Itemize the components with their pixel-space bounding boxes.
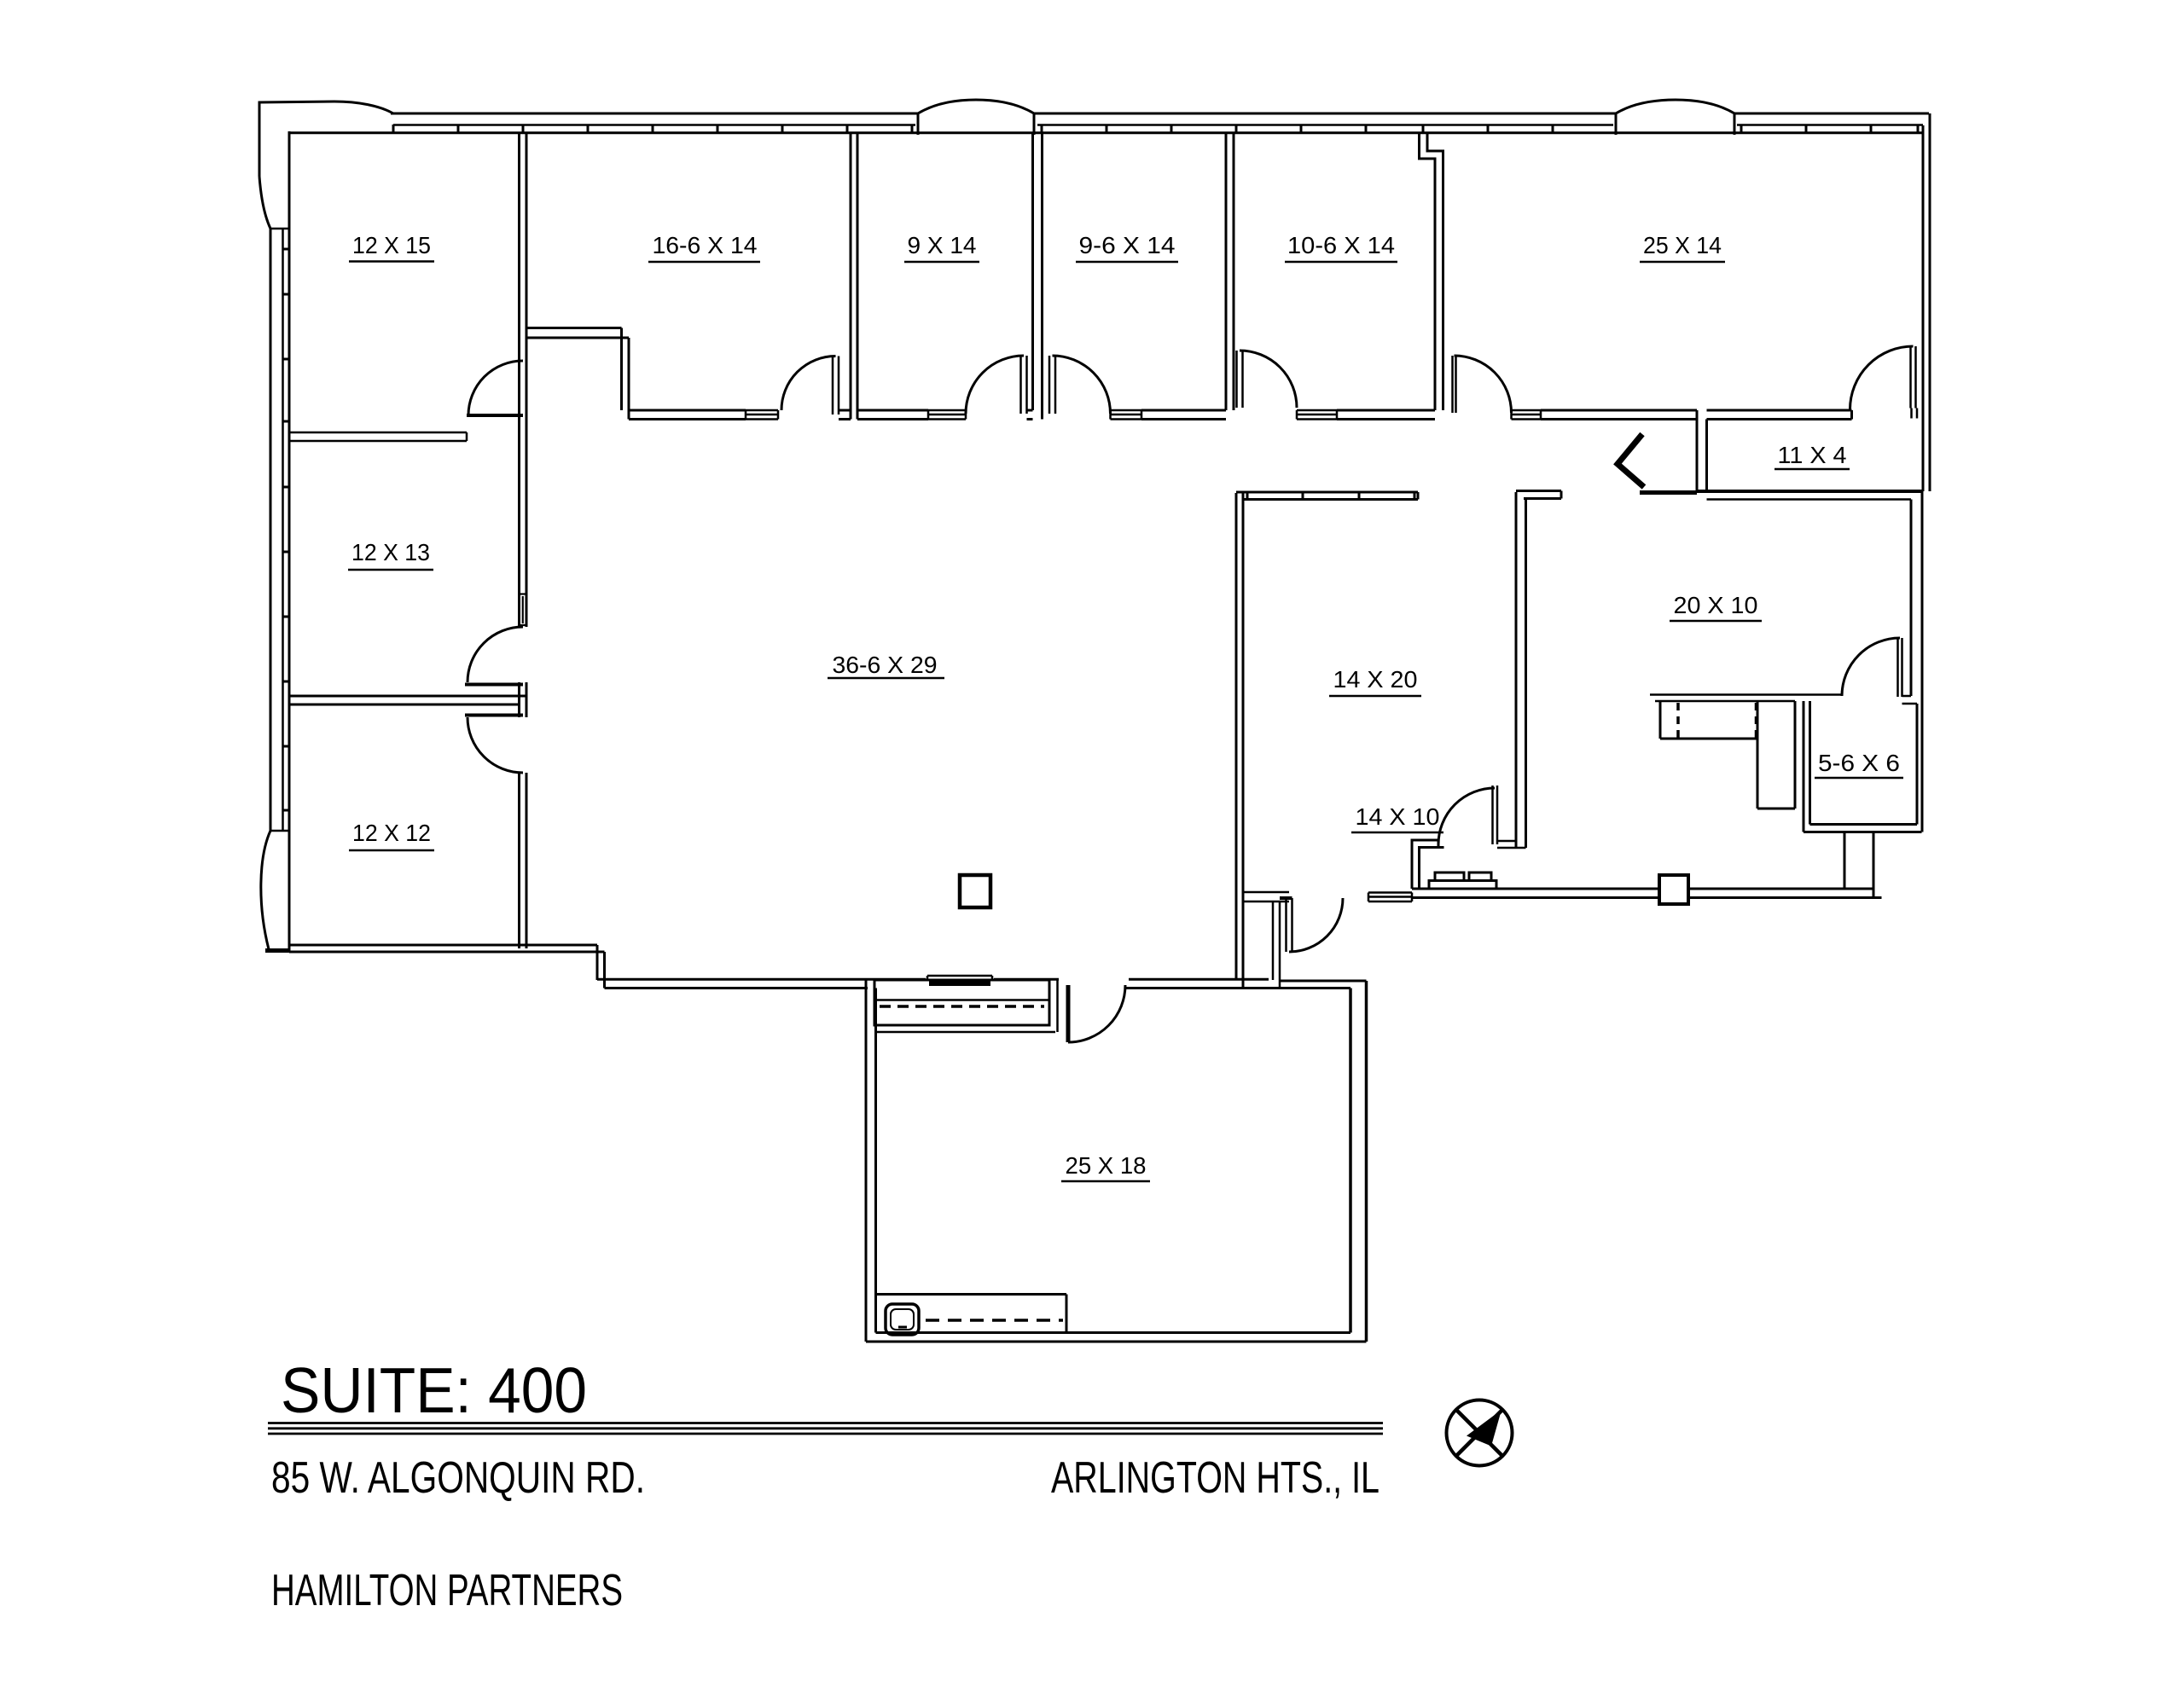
svg-text:12 X 13: 12 X 13 — [351, 539, 430, 565]
svg-text:25 X 14: 25 X 14 — [1643, 232, 1722, 258]
svg-text:10-6 X 14: 10-6 X 14 — [1287, 232, 1395, 258]
svg-text:ARLINGTON HTS., IL: ARLINGTON HTS., IL — [1051, 1453, 1380, 1503]
svg-text:20 X 10: 20 X 10 — [1674, 592, 1758, 618]
svg-text:16-6 X 14: 16-6 X 14 — [653, 232, 758, 258]
svg-text:HAMILTON PARTNERS: HAMILTON PARTNERS — [271, 1566, 623, 1615]
svg-text:85 W. ALGONQUIN RD.: 85 W. ALGONQUIN RD. — [271, 1453, 645, 1503]
svg-text:5-6 X 6: 5-6 X 6 — [1818, 750, 1900, 776]
svg-text:SUITE: 400: SUITE: 400 — [281, 1354, 587, 1426]
svg-text:25 X 18: 25 X 18 — [1066, 1152, 1147, 1179]
svg-text:14 X 10: 14 X 10 — [1356, 803, 1440, 830]
svg-text:36-6 X 29: 36-6 X 29 — [833, 652, 938, 678]
svg-text:14 X 20: 14 X 20 — [1333, 666, 1418, 693]
svg-text:11 X 4: 11 X 4 — [1778, 442, 1847, 468]
svg-text:9-6 X 14: 9-6 X 14 — [1079, 232, 1176, 258]
svg-text:12 X 15: 12 X 15 — [352, 232, 431, 258]
svg-text:9 X 14: 9 X 14 — [908, 232, 977, 258]
svg-text:12 X 12: 12 X 12 — [352, 820, 431, 846]
